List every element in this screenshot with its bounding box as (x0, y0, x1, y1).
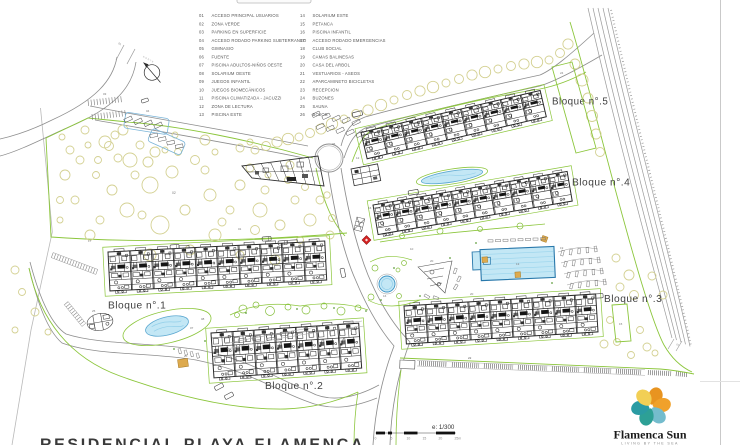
svg-text:FUENTE: FUENTE (212, 55, 230, 60)
svg-text:e: 1/300: e: 1/300 (432, 424, 455, 431)
svg-text:14: 14 (300, 13, 305, 18)
svg-text:20: 20 (430, 259, 434, 263)
svg-text:SAUNA: SAUNA (313, 104, 328, 109)
svg-text:01: 01 (238, 227, 242, 231)
svg-text:Bloque n°.1: Bloque n°.1 (108, 301, 166, 312)
svg-text:ZONA VERDE: ZONA VERDE (212, 21, 241, 26)
svg-text:11: 11 (199, 96, 204, 101)
svg-text:ACCESO RODADO PARKING SUBTERRA: ACCESO RODADO PARKING SUBTERRANEO (212, 38, 308, 43)
svg-text:01: 01 (199, 13, 204, 18)
svg-text:03: 03 (199, 30, 204, 35)
svg-text:26: 26 (300, 112, 305, 117)
svg-text:23: 23 (300, 88, 305, 93)
svg-text:PISCINA ESTE: PISCINA ESTE (212, 112, 242, 117)
svg-text:PISCINA INFANTIL: PISCINA INFANTIL (313, 30, 352, 35)
svg-text:5: 5 (391, 437, 393, 441)
svg-text:ACCESO RODADO EMERGENCIAS: ACCESO RODADO EMERGENCIAS (313, 38, 386, 43)
svg-text:LIVING BY THE SEA: LIVING BY THE SEA (621, 442, 679, 445)
svg-text:RECEPCION: RECEPCION (313, 88, 339, 93)
svg-text:17: 17 (88, 239, 92, 243)
svg-text:22: 22 (300, 79, 305, 84)
svg-text:19: 19 (560, 246, 564, 250)
svg-text:03: 03 (103, 92, 107, 96)
svg-text:Bloque n°.4: Bloque n°.4 (572, 177, 630, 188)
svg-text:05: 05 (268, 161, 272, 165)
svg-text:15: 15 (423, 437, 427, 441)
svg-text:BUZONES: BUZONES (313, 96, 334, 101)
svg-text:20: 20 (184, 354, 188, 358)
svg-text:PARKING EN SUPERFICIE: PARKING EN SUPERFICIE (212, 30, 267, 35)
svg-text:02: 02 (172, 191, 176, 195)
svg-text:GIMNASIO: GIMNASIO (212, 46, 235, 51)
svg-text:20: 20 (439, 437, 443, 441)
svg-text:Flamenca Sun: Flamenca Sun (613, 428, 686, 442)
svg-text:18: 18 (300, 46, 305, 51)
svg-text:CASA DEL ARBOL: CASA DEL ARBOL (313, 63, 351, 68)
svg-text:08: 08 (201, 317, 205, 321)
svg-text:25m: 25m (455, 437, 462, 441)
svg-text:07: 07 (199, 63, 204, 68)
svg-text:Bloque n°.2: Bloque n°.2 (265, 381, 323, 392)
svg-text:0: 0 (375, 437, 377, 441)
svg-text:JUEGOS INFANTIL: JUEGOS INFANTIL (212, 79, 252, 84)
svg-text:RESIDENCIAL PLAYA FLAMENCA: RESIDENCIAL PLAYA FLAMENCA (40, 437, 365, 445)
svg-text:19: 19 (300, 55, 305, 60)
svg-text:16: 16 (300, 30, 305, 35)
svg-text:24: 24 (560, 71, 564, 75)
svg-text:ZONA DE LECTURA: ZONA DE LECTURA (212, 104, 253, 109)
svg-text:VESTUARIOS - ASEOS: VESTUARIOS - ASEOS (313, 71, 361, 76)
svg-text:APARCAMINETO BICICLETAS: APARCAMINETO BICICLETAS (313, 79, 375, 84)
svg-text:21: 21 (300, 71, 305, 76)
svg-text:15: 15 (619, 322, 623, 326)
svg-text:24: 24 (300, 96, 305, 101)
svg-text:CLUB SOCIAL: CLUB SOCIAL (313, 46, 343, 51)
svg-text:PISCINA ADULTOS-NIÑOS OESTE: PISCINA ADULTOS-NIÑOS OESTE (212, 63, 283, 68)
svg-text:13: 13 (199, 112, 204, 117)
svg-text:06: 06 (199, 55, 204, 60)
svg-text:PETANCA: PETANCA (313, 21, 334, 26)
svg-text:CAMAS BALINESAS: CAMAS BALINESAS (313, 55, 355, 60)
svg-text:10: 10 (199, 88, 204, 93)
svg-text:16: 16 (383, 294, 387, 298)
svg-text:JUEGOS BIOMECÁNICOS: JUEGOS BIOMECÁNICOS (212, 88, 266, 93)
svg-text:17: 17 (300, 38, 305, 43)
svg-text:12: 12 (199, 104, 204, 109)
svg-text:20: 20 (300, 63, 305, 68)
svg-text:16: 16 (368, 206, 372, 210)
svg-text:09: 09 (199, 79, 204, 84)
svg-text:05: 05 (199, 46, 204, 51)
svg-text:15: 15 (300, 21, 305, 26)
svg-text:PISCINA CLIMATIZADA - JACUZZI: PISCINA CLIMATIZADA - JACUZZI (212, 96, 282, 101)
svg-text:25: 25 (300, 104, 305, 109)
svg-text:13: 13 (516, 262, 520, 266)
svg-text:SOLARIUM OESTE: SOLARIUM OESTE (212, 71, 251, 76)
svg-text:04: 04 (199, 38, 204, 43)
svg-text:25: 25 (92, 309, 96, 313)
svg-text:ACCESO PRINCIPAL USUARIOS: ACCESO PRINCIPAL USUARIOS (212, 13, 279, 18)
svg-text:22: 22 (468, 356, 472, 360)
svg-text:08: 08 (199, 71, 204, 76)
svg-text:18: 18 (306, 169, 310, 173)
svg-text:20: 20 (470, 292, 474, 296)
svg-text:10: 10 (410, 247, 414, 251)
svg-text:Bloque n°.3: Bloque n°.3 (604, 294, 662, 305)
svg-text:07: 07 (190, 326, 194, 330)
svg-text:12: 12 (356, 156, 360, 160)
svg-text:06: 06 (332, 142, 336, 146)
svg-text:02: 02 (199, 21, 204, 26)
svg-text:10: 10 (407, 437, 411, 441)
svg-text:SOLARIUM ESTE: SOLARIUM ESTE (313, 13, 349, 18)
svg-text:04: 04 (146, 109, 150, 113)
